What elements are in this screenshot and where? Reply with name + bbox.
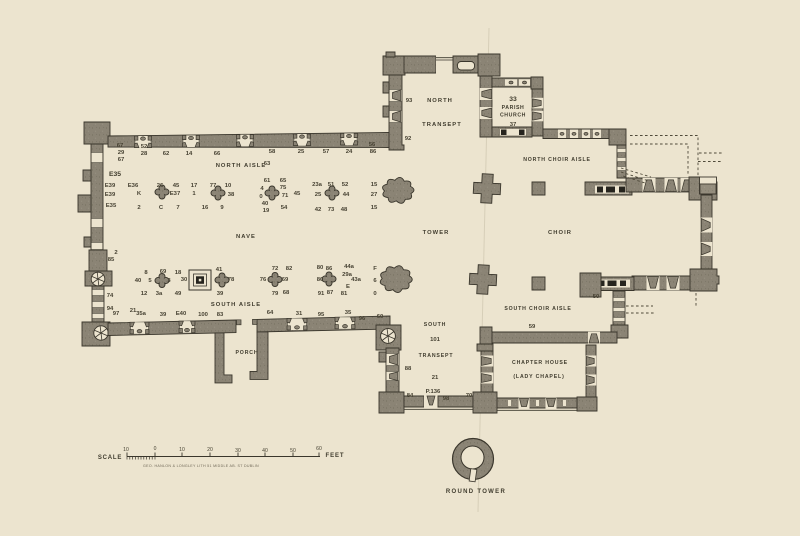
svg-text:E40: E40 <box>176 311 187 317</box>
svg-text:35a: 35a <box>136 311 147 317</box>
svg-text:45: 45 <box>294 191 301 197</box>
svg-text:71: 71 <box>282 193 289 199</box>
svg-text:CHAPTER HOUSE: CHAPTER HOUSE <box>512 360 568 366</box>
svg-text:GEO. HANLON & LONGLEY LITH 5: GEO. HANLON & LONGLEY LITH 51 MIDDLE AB.… <box>143 464 259 468</box>
svg-text:57: 57 <box>323 149 330 155</box>
svg-text:E39: E39 <box>105 183 116 189</box>
svg-text:75: 75 <box>280 185 287 191</box>
svg-text:48: 48 <box>341 207 348 213</box>
svg-text:15: 15 <box>371 205 378 211</box>
svg-text:12: 12 <box>141 291 148 297</box>
svg-text:40: 40 <box>135 278 142 284</box>
svg-text:85: 85 <box>108 257 115 263</box>
svg-text:88: 88 <box>405 366 412 372</box>
svg-text:43a: 43a <box>351 277 362 283</box>
svg-text:E39: E39 <box>105 192 116 198</box>
svg-text:25: 25 <box>315 192 322 198</box>
svg-text:70: 70 <box>466 393 473 399</box>
svg-text:41: 41 <box>216 267 223 273</box>
svg-text:31: 31 <box>296 311 303 317</box>
svg-text:20: 20 <box>207 447 213 453</box>
svg-text:35: 35 <box>345 310 352 316</box>
svg-text:TRANSEPT: TRANSEPT <box>422 122 462 128</box>
svg-text:67: 67 <box>117 143 124 149</box>
svg-text:44: 44 <box>343 192 350 198</box>
svg-text:ROUND TOWER: ROUND TOWER <box>446 489 506 495</box>
svg-text:60: 60 <box>377 314 384 320</box>
svg-text:54: 54 <box>281 205 288 211</box>
svg-text:69: 69 <box>282 277 289 283</box>
svg-text:CHOIR: CHOIR <box>548 230 572 236</box>
svg-text:30: 30 <box>235 448 241 454</box>
svg-text:83: 83 <box>217 312 224 318</box>
svg-text:E36: E36 <box>128 183 139 189</box>
svg-text:F: F <box>373 266 377 272</box>
svg-text:78: 78 <box>228 277 235 283</box>
svg-text:23a: 23a <box>312 182 323 188</box>
svg-text:86: 86 <box>326 266 333 272</box>
svg-text:51: 51 <box>328 182 335 188</box>
svg-text:61: 61 <box>264 178 271 184</box>
svg-text:NORTH AISLE: NORTH AISLE <box>216 163 267 169</box>
svg-text:18: 18 <box>175 270 182 276</box>
svg-text:42: 42 <box>315 207 322 213</box>
svg-text:E37: E37 <box>170 191 181 197</box>
svg-text:10: 10 <box>123 447 129 453</box>
svg-text:81: 81 <box>341 291 348 297</box>
svg-text:44a: 44a <box>344 264 355 270</box>
svg-text:94: 94 <box>107 306 114 312</box>
svg-text:96: 96 <box>359 316 366 322</box>
svg-text:93: 93 <box>406 98 413 104</box>
svg-text:E35: E35 <box>109 171 121 178</box>
svg-text:14: 14 <box>186 151 193 157</box>
svg-text:NAVE: NAVE <box>236 234 256 240</box>
svg-text:82: 82 <box>286 266 293 272</box>
svg-text:52: 52 <box>141 144 148 150</box>
svg-text:PORCH: PORCH <box>236 350 259 356</box>
svg-text:49: 49 <box>175 291 182 297</box>
svg-text:FEET: FEET <box>326 453 345 459</box>
svg-text:0: 0 <box>154 446 157 452</box>
svg-text:10: 10 <box>179 447 185 453</box>
svg-text:28: 28 <box>141 151 148 157</box>
svg-text:SOUTH CHOIR AISLE: SOUTH CHOIR AISLE <box>504 306 571 312</box>
svg-text:NORTH CHOIR AISLE: NORTH CHOIR AISLE <box>523 157 591 163</box>
svg-text:65: 65 <box>280 178 287 184</box>
svg-text:29: 29 <box>118 150 125 156</box>
svg-text:60: 60 <box>316 446 322 452</box>
svg-text:87: 87 <box>327 290 334 296</box>
svg-text:K: K <box>137 191 142 197</box>
svg-text:10: 10 <box>225 183 232 189</box>
svg-text:19: 19 <box>263 208 270 214</box>
svg-text:95: 95 <box>318 312 325 318</box>
svg-text:97: 97 <box>113 311 120 317</box>
svg-text:66: 66 <box>214 151 221 157</box>
svg-text:24: 24 <box>346 149 353 155</box>
svg-text:98: 98 <box>443 396 450 402</box>
svg-text:25: 25 <box>298 149 305 155</box>
svg-text:76: 76 <box>260 277 267 283</box>
svg-text:69: 69 <box>160 269 167 275</box>
svg-text:56: 56 <box>369 142 376 148</box>
svg-text:C: C <box>159 205 164 211</box>
svg-text:P.136: P.136 <box>426 389 441 395</box>
svg-text:80: 80 <box>317 265 324 271</box>
svg-text:15: 15 <box>371 182 378 188</box>
svg-text:3a: 3a <box>156 291 163 297</box>
svg-text:37: 37 <box>510 122 517 128</box>
svg-text:68: 68 <box>283 290 290 296</box>
svg-text:SOUTH: SOUTH <box>424 322 446 328</box>
svg-text:39: 39 <box>217 291 224 297</box>
svg-text:64: 64 <box>267 310 274 316</box>
svg-text:100: 100 <box>198 312 209 318</box>
svg-text:77: 77 <box>210 183 217 189</box>
svg-text:SOUTH AISLE: SOUTH AISLE <box>211 302 261 308</box>
svg-text:50: 50 <box>290 448 296 454</box>
svg-text:E35: E35 <box>106 203 117 209</box>
svg-text:40: 40 <box>262 201 269 207</box>
svg-text:86: 86 <box>370 149 377 155</box>
svg-text:58: 58 <box>269 149 276 155</box>
svg-text:NORTH: NORTH <box>427 98 453 104</box>
svg-text:63: 63 <box>264 161 271 167</box>
svg-text:101: 101 <box>430 337 441 343</box>
svg-text:21: 21 <box>432 375 439 381</box>
svg-text:16: 16 <box>202 205 209 211</box>
svg-text:17: 17 <box>191 183 198 189</box>
svg-text:91: 91 <box>318 291 325 297</box>
svg-text:72: 72 <box>272 266 279 272</box>
svg-text:92: 92 <box>405 136 412 142</box>
svg-text:40: 40 <box>262 448 268 454</box>
svg-text:74: 74 <box>107 293 114 299</box>
svg-text:84: 84 <box>407 393 414 399</box>
svg-text:52: 52 <box>342 182 349 188</box>
svg-text:27: 27 <box>371 192 378 198</box>
svg-text:38: 38 <box>228 192 235 198</box>
svg-text:67: 67 <box>118 157 125 163</box>
svg-text:CHURCH: CHURCH <box>500 113 526 119</box>
svg-text:TRANSEPT: TRANSEPT <box>419 353 454 359</box>
svg-text:33: 33 <box>509 96 517 103</box>
svg-text:79: 79 <box>272 291 279 297</box>
svg-text:80: 80 <box>317 277 324 283</box>
svg-text:73: 73 <box>328 207 335 213</box>
svg-text:26: 26 <box>157 183 164 189</box>
svg-text:50: 50 <box>593 294 600 300</box>
svg-text:59: 59 <box>529 324 536 330</box>
svg-text:TOWER: TOWER <box>423 230 450 236</box>
svg-text:62: 62 <box>163 151 170 157</box>
svg-text:39: 39 <box>160 312 167 318</box>
svg-text:PARISH: PARISH <box>502 105 525 111</box>
svg-text:E: E <box>346 284 350 290</box>
svg-text:SCALE: SCALE <box>98 455 122 461</box>
svg-text:45: 45 <box>173 183 180 189</box>
svg-text:30: 30 <box>181 277 188 283</box>
svg-text:(LADY CHAPEL): (LADY CHAPEL) <box>513 374 564 380</box>
